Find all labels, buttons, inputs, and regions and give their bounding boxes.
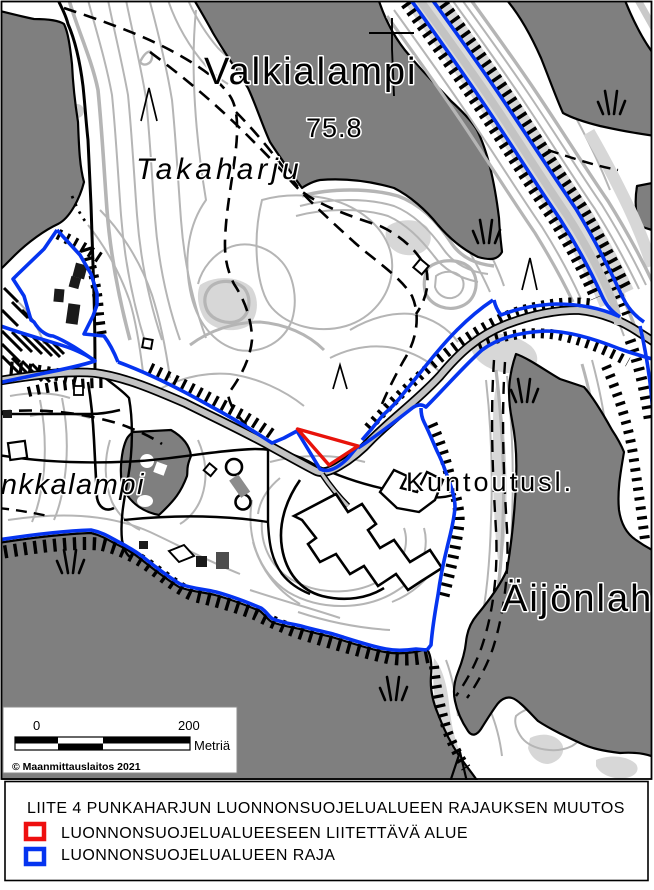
- svg-text:Ankkalampi: Ankkalampi: [0, 469, 145, 501]
- svg-text:75.8: 75.8: [306, 113, 363, 143]
- svg-text:Metriä: Metriä: [194, 738, 231, 753]
- svg-text:Takaharju: Takaharju: [136, 153, 303, 186]
- svg-text:LUONNONSUOJELUALUEESEEN LIITET: LUONNONSUOJELUALUEESEEN LIITETTÄVÄ ALUE: [61, 824, 468, 842]
- svg-text:Valkialampi: Valkialampi: [204, 51, 417, 93]
- svg-text:LIITE 4 PUNKAHARJUN LUONNONSUO: LIITE 4 PUNKAHARJUN LUONNONSUOJELUALUEEN…: [27, 800, 625, 817]
- svg-text:200: 200: [178, 718, 200, 733]
- svg-text:Äijönlahti: Äijönlahti: [502, 578, 654, 620]
- svg-text:LUONNONSUOJELUALUEEN RAJA: LUONNONSUOJELUALUEEN RAJA: [61, 847, 335, 864]
- svg-text:© Maanmittauslaitos 2021: © Maanmittauslaitos 2021: [12, 761, 141, 773]
- svg-text:0: 0: [33, 718, 40, 733]
- svg-text:Kuntoutusl.: Kuntoutusl.: [406, 467, 574, 497]
